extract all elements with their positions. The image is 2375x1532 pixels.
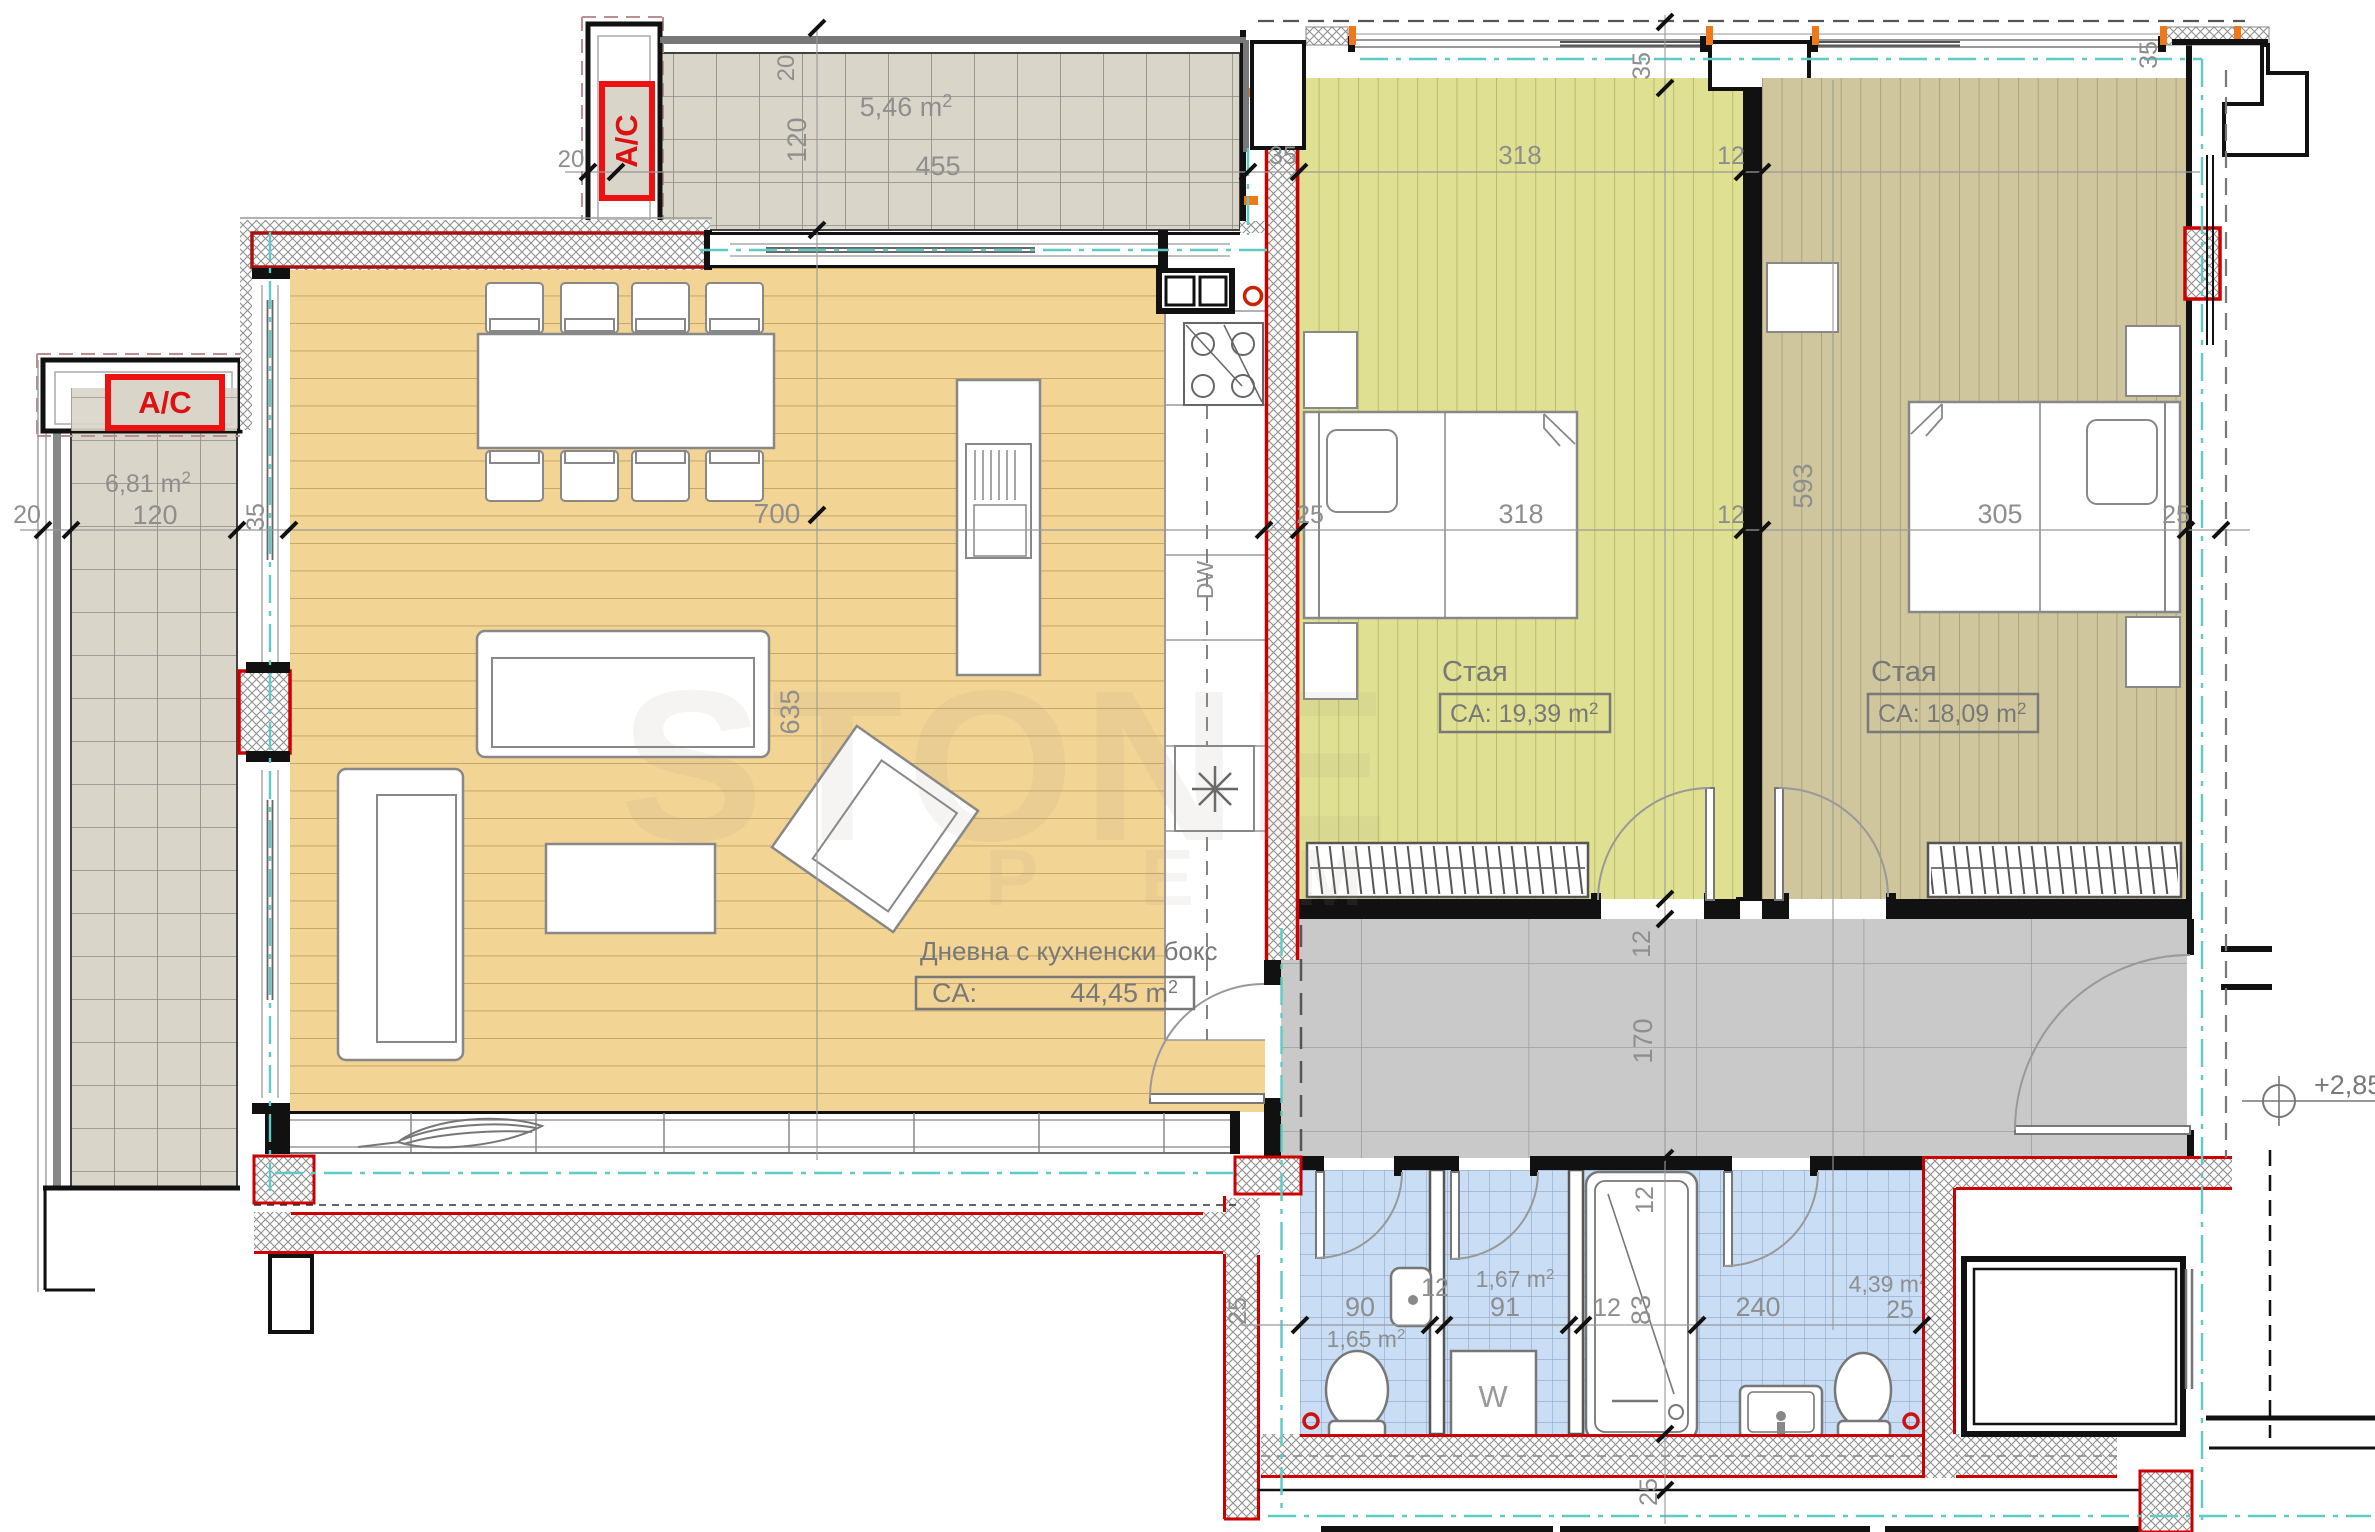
svg-text:Дневна с кухненски бокс: Дневна с кухненски бокс xyxy=(920,936,1218,966)
svg-text:Р Е М: Р Е М xyxy=(985,833,1403,922)
svg-text:12: 12 xyxy=(1717,501,1745,529)
svg-text:12: 12 xyxy=(1631,1186,1659,1214)
svg-text:25: 25 xyxy=(1296,501,1324,529)
svg-text:35: 35 xyxy=(1269,142,1297,170)
svg-text:DW: DW xyxy=(1192,561,1218,600)
svg-text:12: 12 xyxy=(1717,142,1745,170)
svg-text:20: 20 xyxy=(558,146,585,173)
svg-text:35: 35 xyxy=(1628,52,1656,80)
svg-text:25: 25 xyxy=(2162,501,2190,529)
svg-text:12: 12 xyxy=(1421,1274,1449,1302)
svg-text:44,45 m2: 44,45 m2 xyxy=(1070,977,1178,1008)
svg-text:20: 20 xyxy=(13,501,41,529)
svg-text:12: 12 xyxy=(1593,1294,1621,1322)
svg-text:Стая: Стая xyxy=(1871,656,1937,688)
svg-text:700: 700 xyxy=(754,498,801,529)
svg-text:CA: 18,09 m2: CA: 18,09 m2 xyxy=(1878,699,2026,728)
svg-text:318: 318 xyxy=(1498,499,1543,529)
svg-text:A/C: A/C xyxy=(138,385,191,420)
svg-text:35: 35 xyxy=(242,503,270,531)
svg-text:318: 318 xyxy=(1498,140,1541,170)
svg-text:83: 83 xyxy=(1626,1295,1656,1325)
svg-text:1,65 m2: 1,65 m2 xyxy=(1327,1326,1406,1352)
svg-text:4,39 m2: 4,39 m2 xyxy=(1849,1271,1928,1297)
svg-text:Стая: Стая xyxy=(1442,656,1508,688)
svg-text:90: 90 xyxy=(1345,1292,1375,1322)
svg-text:1,67 m2: 1,67 m2 xyxy=(1476,1266,1555,1292)
svg-text:170: 170 xyxy=(1628,1018,1658,1063)
svg-text:20: 20 xyxy=(773,55,800,82)
svg-text:W: W xyxy=(1478,1379,1508,1414)
svg-text:593: 593 xyxy=(1788,463,1818,508)
svg-text:CA:: CA: xyxy=(932,978,977,1008)
svg-text:6,81 m2: 6,81 m2 xyxy=(105,468,191,498)
svg-text:25: 25 xyxy=(1635,1478,1663,1506)
svg-text:120: 120 xyxy=(782,117,812,162)
svg-text:25: 25 xyxy=(1224,1297,1252,1325)
svg-text:12: 12 xyxy=(1628,930,1656,958)
svg-text:25: 25 xyxy=(1886,1296,1914,1324)
svg-text:91: 91 xyxy=(1490,1292,1520,1322)
svg-text:5,46 m2: 5,46 m2 xyxy=(860,91,953,122)
svg-text:+2,85: +2,85 xyxy=(2314,1070,2375,1100)
svg-text:A/C: A/C xyxy=(609,114,644,167)
svg-text:305: 305 xyxy=(1977,499,2022,529)
svg-text:CA: 19,39 m2: CA: 19,39 m2 xyxy=(1450,699,1598,728)
svg-text:455: 455 xyxy=(915,151,960,181)
svg-text:35: 35 xyxy=(2135,41,2163,69)
svg-text:120: 120 xyxy=(132,500,177,530)
svg-text:240: 240 xyxy=(1735,1292,1780,1322)
